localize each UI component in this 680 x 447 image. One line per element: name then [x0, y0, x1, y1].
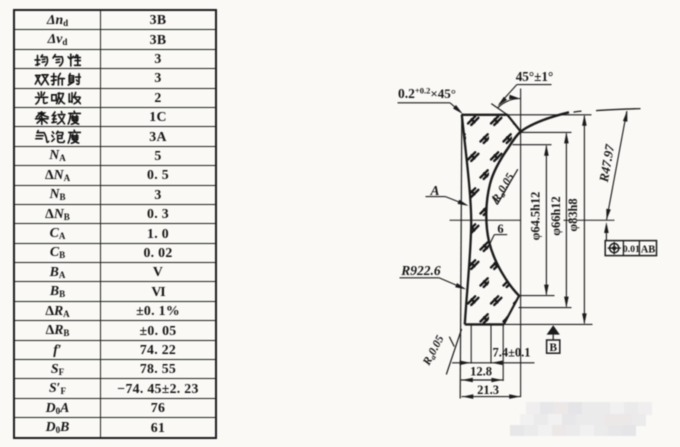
svg-text:7.4±0.1: 7.4±0.1 [492, 346, 530, 360]
svg-text:0.01: 0.01 [623, 244, 640, 255]
svg-text:φ64.5h12: φ64.5h12 [529, 192, 543, 241]
svg-text:AB: AB [641, 244, 656, 255]
svg-text:12.8: 12.8 [470, 365, 492, 379]
svg-text:0.2+0.2×45°: 0.2+0.2×45° [398, 86, 456, 102]
svg-text:R922.6: R922.6 [400, 263, 441, 278]
svg-text:φ66h12: φ66h12 [549, 196, 563, 235]
svg-text:A: A [429, 183, 439, 198]
svg-text:B: B [549, 342, 557, 354]
svg-text:φ83h8: φ83h8 [566, 198, 580, 231]
svg-text:Ra0.05: Ra0.05 [490, 171, 518, 206]
svg-text:Ra0.05: Ra0.05 [421, 334, 448, 369]
svg-text:21.3: 21.3 [477, 383, 499, 397]
svg-text:6: 6 [497, 222, 503, 236]
svg-text:45°±1°: 45°±1° [516, 69, 554, 84]
